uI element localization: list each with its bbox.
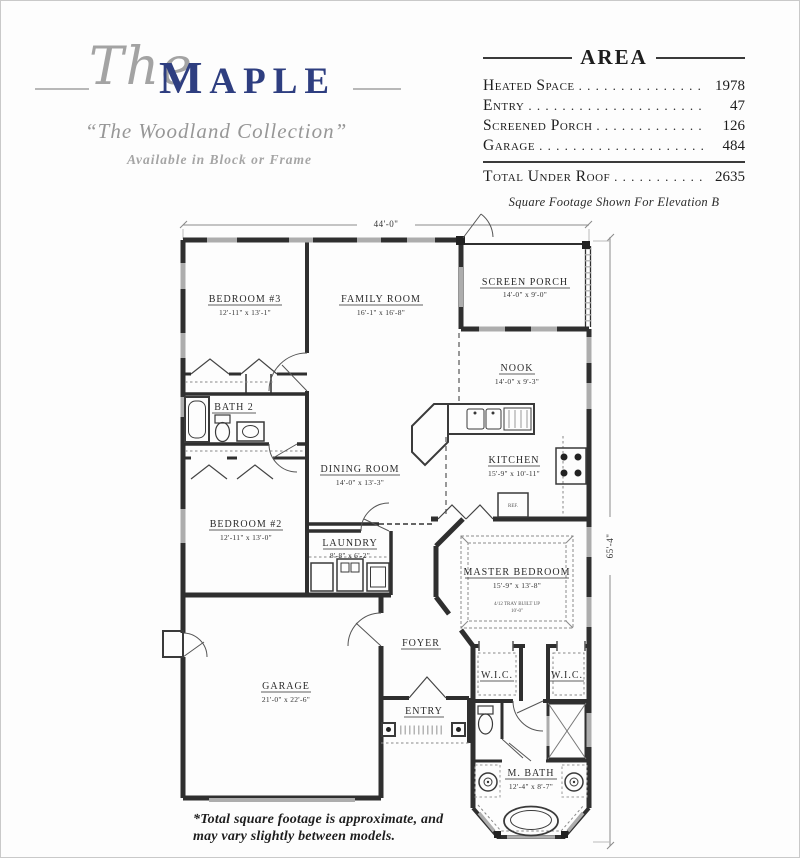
room-label-dining-room: DINING ROOM 14'-0" x 13'-3": [320, 464, 400, 487]
svg-text:FAMILY ROOM: FAMILY ROOM: [341, 294, 421, 305]
porch-posts: [456, 236, 590, 838]
room-labels: BEDROOM #3 12'-11" x 13'-1" FAMILY ROOM …: [208, 277, 584, 791]
svg-text:10'-0": 10'-0": [511, 609, 523, 614]
svg-text:W.I.C.: W.I.C.: [551, 670, 583, 681]
room-label-wic-right: W.I.C.: [550, 670, 584, 681]
svg-text:SCREEN PORCH: SCREEN PORCH: [482, 277, 568, 288]
svg-text:16'-1" x 16'-8": 16'-1" x 16'-8": [357, 308, 405, 317]
footnote: *Total square footage is approximate, an…: [193, 811, 443, 845]
svg-text:21'-0" x 22'-6": 21'-0" x 22'-6": [262, 695, 310, 704]
brochure-page: The MAPLE “The Woodland Collection” Avai…: [0, 0, 800, 858]
front-door: [409, 677, 446, 698]
svg-text:12'-4" x 8'-7": 12'-4" x 8'-7": [509, 782, 553, 791]
svg-text:15'-9" x 13'-8": 15'-9" x 13'-8": [493, 581, 541, 590]
room-label-bath2: BATH 2: [212, 402, 256, 413]
room-label-master-bath: M. BATH 12'-4" x 8'-7": [505, 768, 557, 791]
svg-text:DINING ROOM: DINING ROOM: [320, 464, 399, 475]
dishwasher: [504, 408, 531, 430]
room-label-entry: ENTRY: [404, 706, 444, 717]
room-label-kitchen: KITCHEN 15'-9" x 10'-11": [488, 455, 540, 478]
svg-text:GARAGE: GARAGE: [262, 681, 310, 692]
svg-text:NOOK: NOOK: [501, 363, 534, 374]
svg-text:15'-9" x 10'-11": 15'-9" x 10'-11": [488, 469, 540, 478]
stove: [556, 448, 586, 484]
room-label-screen-porch: SCREEN PORCH 14'-0" x 9'-0": [480, 277, 570, 299]
room-label-bedroom3: BEDROOM #3 12'-11" x 13'-1": [208, 294, 282, 317]
overall-depth-dim: 65'-4": [605, 534, 615, 559]
svg-text:BEDROOM #3: BEDROOM #3: [209, 294, 282, 305]
svg-text:BATH 2: BATH 2: [214, 402, 254, 413]
svg-text:8'-8" x 6'-2": 8'-8" x 6'-2": [330, 551, 370, 560]
sink-mbath-left: [479, 773, 497, 791]
svg-text:LAUNDRY: LAUNDRY: [322, 538, 377, 549]
room-label-laundry: LAUNDRY 8'-8" x 6'-2": [322, 538, 377, 560]
svg-text:KITCHEN: KITCHEN: [489, 455, 540, 466]
room-label-foyer: FOYER: [401, 638, 441, 649]
svg-text:ENTRY: ENTRY: [405, 706, 443, 717]
svg-text:W.I.C.: W.I.C.: [481, 670, 513, 681]
toilet-bath2: [215, 415, 230, 442]
shower: [548, 703, 586, 759]
svg-text:4/12 TRAY BUILT UP: 4/12 TRAY BUILT UP: [494, 602, 540, 607]
garden-tub: [504, 807, 558, 836]
svg-text:M. BATH: M. BATH: [507, 768, 554, 779]
svg-text:14'-0" x 9'-3": 14'-0" x 9'-3": [495, 377, 539, 386]
svg-text:BEDROOM #2: BEDROOM #2: [210, 519, 283, 530]
svg-text:FOYER: FOYER: [402, 638, 440, 649]
room-label-garage: GARAGE 21'-0" x 22'-6": [261, 681, 311, 704]
room-label-family-room: FAMILY ROOM 16'-1" x 16'-8": [339, 294, 423, 317]
room-label-wic-left: W.I.C.: [480, 670, 514, 681]
refrigerator-label: REF.: [508, 504, 518, 509]
room-label-nook: NOOK 14'-0" x 9'-3": [495, 363, 539, 386]
washer-dryer: [311, 559, 389, 591]
garage-side-pad: [163, 631, 183, 657]
footnote-line1: *Total square footage is approximate, an…: [193, 811, 443, 828]
svg-text:12'-11" x 13'-1": 12'-11" x 13'-1": [219, 308, 271, 317]
sink-bath2: [237, 422, 264, 441]
footnote-line2: may vary slightly between models.: [193, 828, 443, 845]
room-label-bedroom2: BEDROOM #2 12'-11" x 13'-0": [209, 519, 283, 542]
svg-text:14'-0" x 9'-0": 14'-0" x 9'-0": [503, 290, 547, 299]
svg-text:MASTER BEDROOM: MASTER BEDROOM: [463, 567, 570, 578]
svg-text:14'-0" x 13'-3": 14'-0" x 13'-3": [336, 478, 384, 487]
svg-text:12'-11" x 13'-0": 12'-11" x 13'-0": [220, 533, 272, 542]
toilet-mbath: [478, 706, 493, 734]
kitchen-sink: [467, 409, 501, 429]
floor-plan-drawing: 44'-0" 65'-4": [1, 1, 799, 857]
bathtub-bath2: [185, 397, 209, 442]
overall-width-dim: 44'-0": [374, 219, 399, 229]
room-label-master-bedroom: MASTER BEDROOM 15'-9" x 13'-8" 4/12 TRAY…: [463, 567, 570, 614]
sink-mbath-right: [565, 773, 583, 791]
